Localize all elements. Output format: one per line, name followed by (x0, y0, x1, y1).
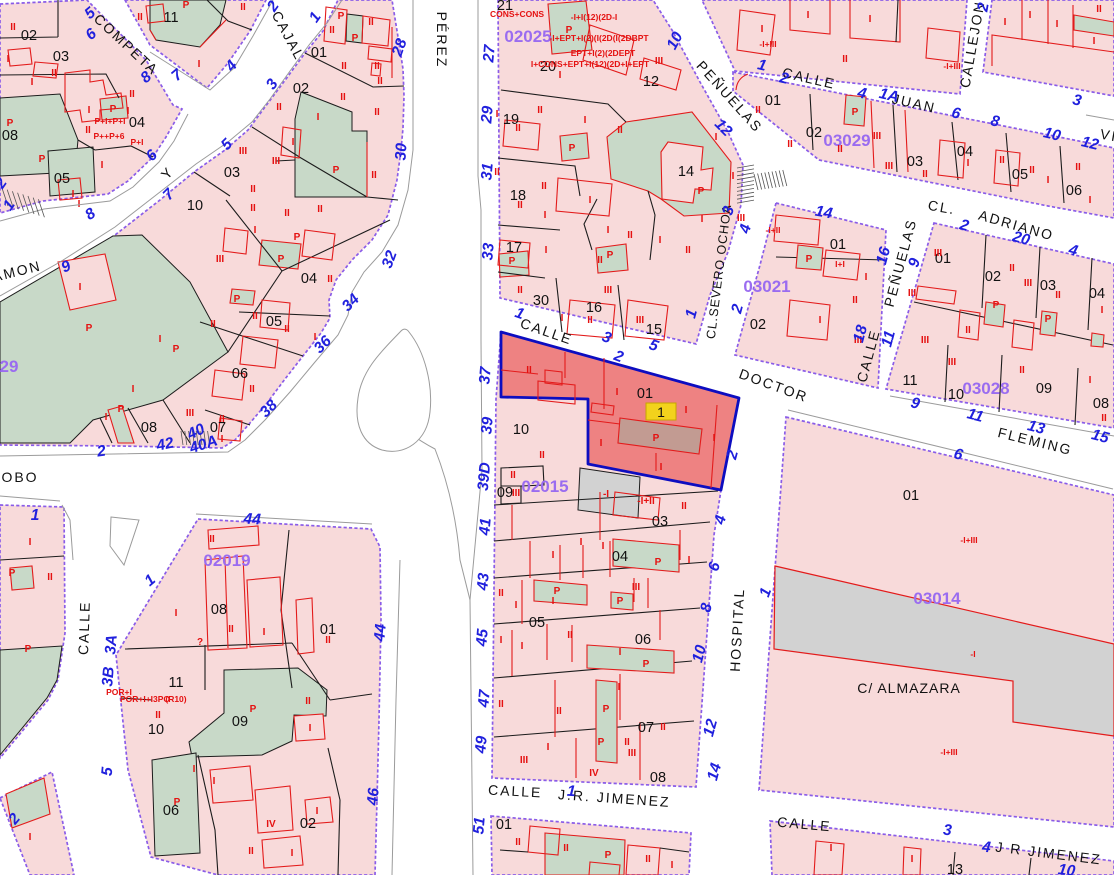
svg-text:10: 10 (148, 722, 164, 738)
svg-text:I: I (713, 433, 716, 444)
svg-text:P: P (352, 33, 359, 44)
svg-text:I: I (688, 555, 691, 566)
svg-text:07: 07 (638, 720, 654, 736)
svg-text:44: 44 (242, 511, 261, 529)
svg-text:I: I (1004, 17, 1007, 28)
svg-text:I: I (1093, 36, 1096, 47)
svg-text:II: II (685, 245, 691, 256)
svg-text:P: P (653, 433, 660, 444)
svg-text:01: 01 (903, 488, 919, 504)
svg-text:33: 33 (479, 242, 497, 261)
svg-text:29: 29 (478, 105, 497, 125)
svg-text:04: 04 (1089, 286, 1105, 302)
svg-text:II: II (371, 170, 377, 181)
svg-text:II: II (498, 588, 504, 599)
svg-text:-I+III: -I+III (940, 747, 957, 757)
svg-text:P: P (118, 404, 125, 415)
svg-text:III: III (628, 748, 637, 759)
svg-text:?: ? (197, 637, 203, 648)
svg-text:II: II (325, 635, 331, 646)
svg-text:I: I (865, 272, 868, 283)
svg-text:II: II (539, 450, 545, 461)
svg-text:CONS+CONS: CONS+CONS (490, 9, 544, 19)
svg-text:P: P (852, 107, 859, 118)
svg-text:II: II (567, 630, 573, 641)
svg-text:VI: VI (1099, 126, 1114, 145)
svg-text:12: 12 (643, 74, 659, 90)
svg-text:I: I (500, 635, 503, 646)
svg-text:I+I: I+I (835, 259, 845, 269)
svg-text:I: I (819, 315, 822, 326)
svg-text:P: P (569, 143, 576, 154)
svg-text:P: P (509, 256, 516, 267)
svg-text:30: 30 (533, 293, 549, 309)
svg-text:II: II (510, 470, 516, 481)
svg-text:I: I (198, 59, 201, 70)
svg-text:08: 08 (650, 770, 666, 786)
svg-text:II: II (587, 315, 593, 326)
svg-text:P: P (993, 300, 1000, 311)
svg-text:II: II (374, 107, 380, 118)
svg-text:-I+EPT+I(2)(I(2D(I(2DBPT: -I+EPT+I(2)(I(2D(I(2DBPT (549, 33, 649, 43)
svg-text:II: II (563, 843, 569, 854)
svg-text:P: P (554, 586, 561, 597)
svg-text:POR+I+I3PO: POR+I+I3PO (120, 694, 170, 704)
svg-text:III: III (873, 131, 882, 142)
svg-text:III: III (948, 357, 957, 368)
svg-text:14: 14 (678, 164, 694, 180)
svg-text:I: I (552, 596, 555, 607)
svg-text:II: II (210, 319, 216, 330)
svg-text:I: I (263, 627, 266, 638)
svg-text:I: I (31, 77, 34, 88)
svg-text:I: I (830, 843, 833, 854)
svg-text:49: 49 (472, 735, 491, 755)
svg-text:III: III (921, 335, 930, 346)
svg-text:P+I+P+I: P+I+P+I (95, 116, 126, 126)
svg-text:I: I (316, 806, 319, 817)
svg-text:02: 02 (806, 125, 822, 141)
svg-text:1: 1 (657, 404, 665, 420)
svg-text:1: 1 (31, 507, 40, 524)
svg-text:II: II (10, 22, 16, 33)
svg-text:II: II (276, 102, 282, 113)
svg-text:P: P (643, 659, 650, 670)
svg-text:51: 51 (470, 816, 488, 835)
svg-text:IV: IV (266, 819, 276, 830)
svg-text:02015: 02015 (521, 477, 568, 496)
svg-text:I: I (584, 115, 587, 126)
svg-text:II: II (252, 311, 258, 322)
svg-text:II: II (498, 699, 504, 710)
svg-text:I: I (213, 776, 216, 787)
svg-text:37: 37 (476, 365, 495, 385)
svg-text:39D: 39D (475, 462, 494, 492)
svg-text:P: P (655, 557, 662, 568)
svg-text:P: P (333, 165, 340, 176)
svg-text:I: I (105, 412, 108, 423)
svg-text:P: P (110, 104, 117, 115)
svg-text:I: I (88, 105, 91, 116)
svg-text:03: 03 (652, 514, 668, 530)
svg-text:11: 11 (163, 10, 178, 26)
svg-text:II: II (327, 274, 333, 285)
svg-text:06: 06 (635, 632, 651, 648)
svg-text:P: P (607, 250, 614, 261)
svg-text:03: 03 (53, 49, 69, 65)
svg-text:I: I (602, 541, 605, 552)
svg-text:47: 47 (475, 688, 494, 709)
svg-text:II: II (624, 737, 630, 748)
svg-text:II: II (240, 2, 246, 13)
svg-text:P: P (605, 850, 612, 861)
svg-text:P: P (7, 118, 14, 129)
svg-text:II: II (305, 696, 311, 707)
svg-text:II: II (250, 184, 256, 195)
svg-text:P: P (806, 254, 813, 265)
svg-text:I: I (7, 54, 10, 65)
svg-text:08: 08 (1093, 396, 1109, 412)
svg-text:43: 43 (474, 572, 493, 592)
svg-text:II: II (137, 12, 143, 23)
svg-text:I: I (72, 189, 75, 200)
svg-text:I: I (175, 608, 178, 619)
svg-text:II: II (85, 125, 91, 136)
svg-text:05: 05 (529, 615, 545, 631)
svg-text:II: II (317, 204, 323, 215)
svg-text:I: I (659, 235, 662, 246)
svg-text:02025: 02025 (504, 27, 551, 46)
svg-text:II: II (999, 155, 1005, 166)
svg-text:02: 02 (750, 317, 766, 333)
svg-text:I: I (292, 137, 295, 148)
svg-text:-I: -I (970, 649, 975, 659)
svg-text:P: P (598, 737, 605, 748)
svg-text:P: P (698, 186, 705, 197)
svg-text:46: 46 (364, 787, 383, 807)
svg-text:03: 03 (224, 165, 240, 181)
svg-text:02019: 02019 (203, 551, 250, 570)
svg-text:27: 27 (480, 43, 499, 64)
svg-text:3A: 3A (102, 634, 121, 655)
svg-text:CALLE: CALLE (488, 782, 543, 801)
svg-text:II: II (965, 325, 971, 336)
svg-text:-I+II: -I+II (637, 496, 655, 507)
svg-text:41: 41 (476, 517, 495, 537)
svg-text:I: I (619, 647, 622, 658)
svg-text:05: 05 (54, 171, 70, 187)
svg-text:II: II (329, 25, 335, 36)
svg-text:I: I (547, 742, 550, 753)
svg-text:II: II (219, 414, 225, 425)
svg-text:-I+III: -I+III (759, 39, 776, 49)
svg-text:04: 04 (612, 549, 628, 565)
svg-text:I: I (544, 210, 547, 221)
svg-text:13: 13 (947, 862, 963, 875)
svg-text:39: 39 (478, 416, 496, 435)
svg-text:I: I (1047, 175, 1050, 186)
svg-text:II: II (787, 139, 793, 150)
svg-text:II: II (340, 92, 346, 103)
svg-text:09: 09 (1036, 381, 1052, 397)
svg-text:II: II (228, 624, 234, 635)
svg-text:05: 05 (266, 314, 282, 330)
svg-text:P: P (39, 154, 46, 165)
svg-text:I: I (1089, 195, 1092, 206)
svg-text:EPT+I(2)(2DEPT: EPT+I(2)(2DEPT (571, 48, 636, 58)
svg-text:10: 10 (1057, 861, 1077, 875)
svg-text:OBO: OBO (1, 469, 38, 485)
svg-text:II: II (627, 230, 633, 241)
svg-text:I: I (309, 723, 312, 734)
svg-text:II: II (515, 123, 521, 134)
svg-text:I: I (561, 313, 564, 324)
svg-text:II: II (556, 706, 562, 717)
svg-text:P: P (338, 11, 345, 22)
svg-text:I: I (869, 14, 872, 25)
svg-text:P+I: P+I (131, 137, 144, 147)
svg-text:P: P (250, 704, 257, 715)
svg-text:I: I (671, 860, 674, 871)
svg-text:I: I (911, 854, 914, 865)
svg-text:08: 08 (211, 602, 227, 618)
svg-text:PÉREZ: PÉREZ (434, 12, 450, 69)
svg-text:03028: 03028 (962, 379, 1009, 398)
svg-text:I: I (521, 641, 524, 652)
svg-text:I: I (660, 462, 663, 473)
svg-text:III: III (520, 755, 529, 766)
svg-text:01: 01 (765, 93, 781, 109)
svg-text:II: II (837, 144, 843, 155)
svg-text:II: II (374, 61, 380, 72)
svg-text:II: II (284, 324, 290, 335)
svg-text:II: II (341, 61, 347, 72)
svg-text:01: 01 (637, 386, 653, 402)
svg-text:P: P (278, 254, 285, 265)
svg-text:-I+II: -I+II (766, 225, 781, 235)
svg-text:P: P (9, 568, 16, 579)
svg-text:II: II (250, 203, 256, 214)
svg-text:03: 03 (907, 154, 923, 170)
svg-text:P: P (617, 596, 624, 607)
svg-text:II: II (515, 837, 521, 848)
svg-text:P: P (294, 232, 301, 243)
svg-text:II: II (249, 384, 255, 395)
svg-text:III: III (655, 56, 664, 67)
svg-text:I: I (618, 682, 621, 693)
svg-text:17: 17 (506, 240, 522, 256)
svg-text:3B: 3B (99, 666, 118, 687)
svg-text:II: II (517, 200, 523, 211)
svg-text:I: I (132, 384, 135, 395)
svg-text:I: I (101, 160, 104, 171)
svg-text:P: P (173, 344, 180, 355)
svg-text:I: I (193, 764, 196, 775)
svg-text:16: 16 (586, 300, 602, 316)
svg-text:I: I (616, 387, 619, 398)
svg-text:III: III (636, 315, 645, 326)
svg-text:I: I (29, 832, 32, 843)
svg-text:-I+I(12)(2D-I: -I+I(12)(2D-I (571, 12, 618, 22)
svg-text:45: 45 (473, 628, 492, 648)
svg-text:30: 30 (393, 142, 411, 160)
svg-text:II: II (248, 846, 254, 857)
svg-text:10: 10 (187, 198, 203, 214)
svg-text:15: 15 (646, 322, 662, 338)
svg-text:09: 09 (232, 714, 248, 730)
svg-text:I: I (1029, 10, 1032, 21)
svg-text:II: II (1029, 165, 1035, 176)
svg-text:11: 11 (902, 373, 917, 389)
svg-text:02: 02 (985, 269, 1001, 285)
svg-text:44: 44 (371, 623, 390, 643)
svg-text:I: I (807, 10, 810, 21)
svg-text:II: II (852, 295, 858, 306)
svg-text:P: P (603, 704, 610, 715)
svg-text:II: II (526, 365, 532, 376)
svg-text:III: III (934, 248, 943, 259)
svg-text:P: P (86, 323, 93, 334)
svg-text:I: I (967, 158, 970, 169)
svg-text:II: II (842, 54, 848, 65)
svg-text:II: II (1075, 162, 1081, 173)
svg-text:05: 05 (1012, 167, 1028, 183)
svg-text:P: P (566, 25, 573, 36)
svg-text:31: 31 (478, 162, 496, 181)
svg-text:II: II (368, 17, 374, 28)
svg-text:II: II (47, 572, 53, 583)
svg-text:I: I (685, 405, 688, 416)
svg-text:III: III (632, 582, 641, 593)
svg-text:P: P (234, 294, 241, 305)
svg-text:(R10): (R10) (165, 694, 186, 704)
svg-text:11: 11 (168, 675, 183, 691)
svg-text:III: III (239, 146, 248, 157)
svg-text:06: 06 (232, 366, 248, 382)
svg-text:IV: IV (589, 768, 599, 779)
svg-text:III: III (512, 488, 521, 499)
svg-text:II: II (129, 89, 135, 100)
svg-text:II: II (597, 255, 603, 266)
svg-text:III: III (604, 285, 613, 296)
svg-text:I: I (559, 70, 562, 81)
svg-text:P: P (25, 644, 32, 655)
svg-text:II: II (1019, 365, 1025, 376)
svg-text:II: II (1009, 263, 1015, 274)
svg-text:II: II (537, 105, 543, 116)
svg-text:04: 04 (129, 115, 145, 131)
svg-text:03014: 03014 (913, 589, 961, 608)
svg-text:I: I (580, 537, 583, 548)
svg-text:I: I (545, 245, 548, 256)
svg-text:4: 4 (980, 839, 991, 857)
svg-text:I: I (159, 334, 162, 345)
svg-text:II: II (617, 125, 623, 136)
svg-text:29: 29 (0, 357, 18, 376)
svg-text:1: 1 (566, 783, 576, 800)
svg-text:III: III (186, 408, 195, 419)
svg-text:III: III (908, 288, 917, 299)
svg-text:10: 10 (513, 422, 529, 438)
svg-text:I: I (254, 225, 257, 236)
svg-text:P: P (1045, 314, 1052, 325)
svg-text:I: I (29, 537, 32, 548)
svg-text:II: II (284, 208, 290, 219)
svg-text:04: 04 (301, 271, 317, 287)
svg-text:I: I (732, 171, 735, 182)
svg-text:01: 01 (496, 817, 512, 833)
svg-text:III: III (216, 254, 225, 265)
svg-text:II: II (1101, 413, 1107, 424)
svg-text:I: I (317, 112, 320, 123)
svg-text:I: I (1089, 375, 1092, 386)
svg-text:II: II (660, 722, 666, 733)
svg-text:-I+III: -I+III (943, 61, 960, 71)
svg-text:II: II (1055, 290, 1061, 301)
svg-text:II: II (377, 76, 383, 87)
svg-text:II: II (541, 181, 547, 192)
svg-text:14: 14 (814, 203, 834, 223)
svg-text:II: II (51, 68, 57, 79)
svg-text:III: III (1024, 278, 1033, 289)
svg-text:I: I (291, 848, 294, 859)
svg-text:I: I (607, 225, 610, 236)
svg-text:I: I (552, 550, 555, 561)
svg-text:02: 02 (300, 816, 316, 832)
svg-text:P: P (174, 797, 181, 808)
svg-text:III: III (885, 161, 894, 172)
svg-text:II: II (155, 710, 161, 721)
svg-text:I: I (221, 434, 224, 445)
svg-text:-I+III: -I+III (960, 535, 977, 545)
svg-text:I+CONS+EPT+I(12)(2D+I+EPT: I+CONS+EPT+I(12)(2D+I+EPT (531, 59, 650, 69)
svg-text:I: I (515, 600, 518, 611)
svg-text:03021: 03021 (743, 277, 790, 296)
svg-text:II: II (922, 169, 928, 180)
svg-text:I: I (1101, 305, 1104, 316)
svg-text:I: I (79, 282, 82, 293)
svg-text:I: I (701, 214, 704, 225)
svg-text:II: II (681, 501, 687, 512)
svg-text:P++P+6: P++P+6 (94, 131, 125, 141)
svg-text:10: 10 (948, 387, 964, 403)
svg-text:-I: -I (603, 489, 609, 500)
svg-text:II: II (645, 854, 651, 865)
svg-text:III: III (272, 156, 281, 167)
svg-text:II: II (209, 534, 215, 545)
svg-text:I: I (761, 24, 764, 35)
svg-text:I: I (589, 195, 592, 206)
svg-text:06: 06 (1066, 183, 1082, 199)
svg-text:08: 08 (2, 128, 18, 144)
svg-text:03029: 03029 (823, 131, 870, 150)
svg-text:01: 01 (830, 237, 846, 253)
svg-text:08: 08 (141, 420, 157, 436)
svg-text:02: 02 (21, 28, 37, 44)
svg-text:II: II (1096, 4, 1102, 15)
svg-text:C/ ALMAZARA: C/ ALMAZARA (857, 680, 961, 696)
svg-text:I: I (127, 106, 130, 117)
svg-text:09: 09 (497, 485, 513, 501)
svg-text:I: I (600, 438, 603, 449)
svg-text:01: 01 (311, 45, 327, 61)
svg-text:02: 02 (293, 81, 309, 97)
svg-text:P: P (183, 0, 190, 11)
svg-text:I: I (1056, 19, 1059, 30)
svg-text:04: 04 (957, 144, 973, 160)
svg-text:03: 03 (1040, 278, 1056, 294)
svg-text:II: II (517, 285, 523, 296)
